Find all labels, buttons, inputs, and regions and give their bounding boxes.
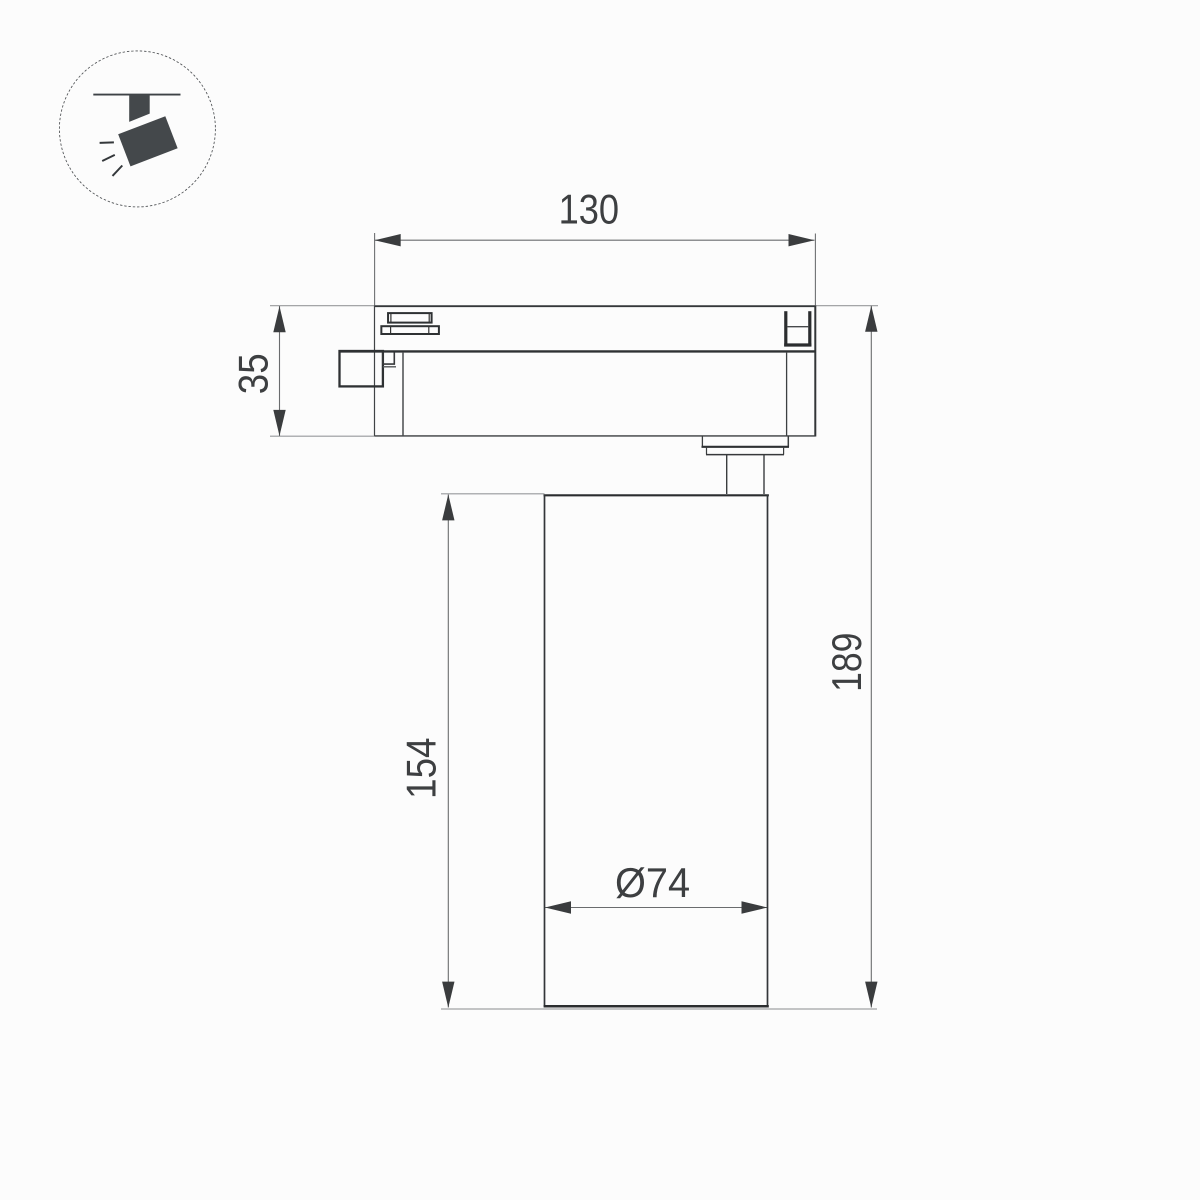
- svg-text:Ø74: Ø74: [615, 859, 690, 906]
- svg-text:35: 35: [229, 353, 276, 394]
- svg-text:154: 154: [397, 738, 444, 799]
- svg-text:189: 189: [823, 633, 870, 692]
- svg-text:130: 130: [559, 185, 620, 232]
